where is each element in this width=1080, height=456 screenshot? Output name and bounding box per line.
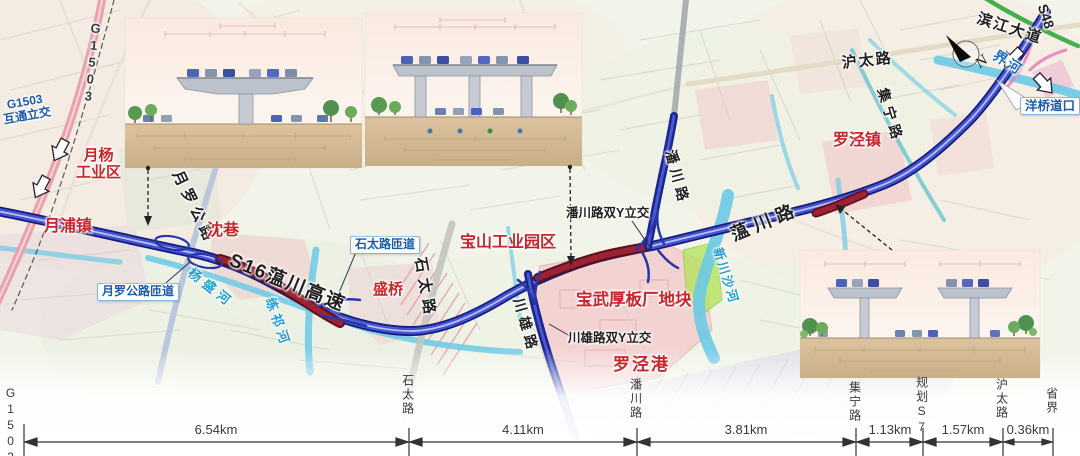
cross-section-inset-3: [800, 250, 1040, 378]
shengqiao-label: 盛桥: [373, 281, 403, 298]
yueyang-line2: 工业区: [76, 164, 121, 181]
yueluo-ramp-label: 月罗公路匝道: [97, 283, 179, 301]
yangqiao-crossing-label: 洋桥道口: [1020, 97, 1080, 115]
cross-section-inset-1: [125, 18, 362, 168]
scale-boundary-hutai: 沪太路: [995, 378, 1008, 420]
baoshan-industrial-park-label: 宝山工业园区: [460, 234, 556, 252]
scale-start-label: G1503: [4, 386, 17, 456]
shenxiang-label: 沈巷: [207, 222, 239, 240]
luojing-port-label: 罗泾港: [613, 355, 670, 375]
scale-boundary-jining: 集宁路: [848, 381, 861, 423]
scale-distance-6: 0.36km: [1007, 423, 1050, 437]
scale-boundary-guihua-s7: 规划S7: [915, 376, 928, 436]
panchuan-y-interchange-label: 潘川路双Y立交: [566, 206, 649, 220]
s16-route-map: G1503 G1503 互通立交 月杨 工业区 月浦镇 月罗公路 沈巷 S16蕰…: [0, 0, 1080, 456]
chuanxiong-y-interchange-label: 川雄路双Y立交: [568, 331, 651, 345]
scale-boundary-panchuan: 潘川路: [629, 378, 642, 420]
scale-boundary-shitai: 石太路: [401, 374, 414, 416]
baowu-plate-plant-label: 宝武厚板厂地块: [576, 291, 692, 310]
scale-distance-2: 4.11km: [502, 423, 544, 437]
yueyang-line1: 月杨: [76, 147, 121, 164]
scale-distance-3: 3.81km: [725, 423, 768, 437]
yuepu-town-label: 月浦镇: [44, 218, 92, 236]
scale-distance-1: 6.54km: [195, 423, 238, 437]
yueyang-industrial-label: 月杨 工业区: [76, 147, 121, 182]
scale-distance-5: 1.57km: [942, 423, 985, 437]
cross-section-inset-2: [365, 13, 582, 166]
scale-boundary-shengjie: 省界: [1045, 387, 1058, 415]
shitai-ramp-label: 石太路匝道: [350, 236, 420, 254]
luojing-town-label: 罗泾镇: [833, 132, 881, 150]
scale-distance-4: 1.13km: [869, 423, 912, 437]
